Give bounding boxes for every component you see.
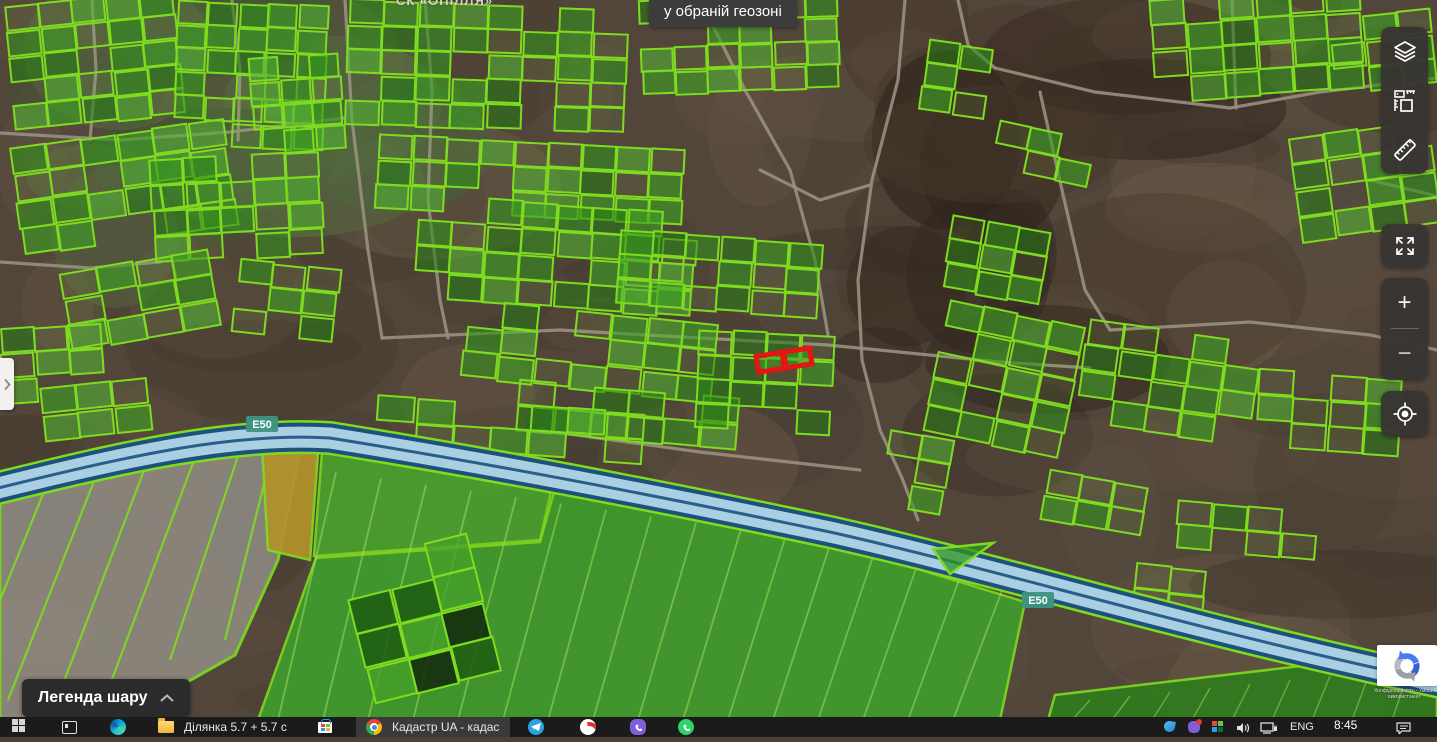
legend-scale-button[interactable] [1381, 78, 1428, 124]
expand-side-panel-tab[interactable] [0, 358, 14, 410]
edge-icon [110, 719, 126, 735]
tray-blue-icon [1163, 720, 1176, 733]
locate-icon [1392, 401, 1418, 427]
volume-icon [1236, 722, 1250, 734]
taskbar-folder-window[interactable] [158, 719, 174, 733]
taskbar-whatsapp[interactable] [678, 719, 694, 735]
taskbar-clock[interactable]: 8:45 [1334, 718, 1357, 732]
zoom-out-button[interactable]: − [1381, 329, 1428, 379]
whatsapp-icon [678, 719, 694, 735]
store-icon [318, 722, 332, 733]
chrome-icon [366, 719, 382, 735]
red-circle-app-icon [580, 719, 596, 735]
geozone-tooltip: у обраній геозоні [649, 0, 797, 27]
taskbar-viber[interactable] [630, 719, 646, 735]
taskbar-telegram[interactable] [528, 719, 544, 735]
layers-button[interactable] [1381, 29, 1428, 75]
locate-me-button[interactable] [1381, 391, 1428, 437]
fullscreen-icon [1393, 234, 1417, 258]
task-view-button[interactable] [62, 721, 77, 734]
tray-colored-app[interactable] [1212, 719, 1223, 732]
map-legend-icon [1392, 88, 1418, 114]
taskbar-edge[interactable] [110, 719, 126, 735]
recaptcha-badge[interactable] [1377, 645, 1437, 686]
layers-icon [1392, 39, 1418, 65]
measure-button[interactable] [1381, 127, 1428, 173]
satellite-cadastre-map[interactable]: E50E50 [0, 0, 1437, 737]
recaptcha-privacy-terms[interactable]: Конфіденційність - Умови використання [1371, 688, 1437, 700]
recaptcha-icon [1390, 649, 1424, 683]
colored-grid-icon [1212, 721, 1223, 732]
zoom-in-button[interactable]: + [1381, 278, 1428, 328]
measure-ruler-icon [1391, 136, 1419, 164]
fullscreen-button[interactable] [1381, 224, 1428, 268]
layer-legend-button[interactable]: Легенда шару [22, 679, 190, 717]
chevron-right-icon [4, 379, 11, 390]
zoom-controls: + − [1381, 278, 1428, 380]
taskbar-store[interactable] [318, 719, 332, 733]
task-view-icon [62, 721, 77, 734]
svg-text:E50: E50 [1028, 595, 1048, 607]
taskbar-red-app[interactable] [580, 719, 596, 735]
taskbar-active-window[interactable]: Кадастр UA - кадас [356, 717, 510, 737]
windows-taskbar: Ділянка 5.7 + 5.7 с Кадастр UA - кадас [0, 717, 1437, 737]
viber-icon [630, 719, 646, 735]
map-tools-panel [1381, 27, 1428, 174]
notification-center-button[interactable] [1396, 721, 1411, 737]
network-icon [1260, 722, 1278, 734]
chevron-up-icon [160, 694, 174, 702]
tray-viber[interactable] [1188, 719, 1200, 733]
telegram-icon [528, 719, 544, 735]
tray-network[interactable] [1260, 721, 1278, 737]
svg-text:E50: E50 [252, 419, 272, 431]
folder-icon [158, 721, 174, 733]
language-indicator[interactable]: ENG [1290, 721, 1314, 733]
windows-logo-icon [12, 719, 26, 733]
notification-center-icon [1396, 722, 1411, 734]
layer-legend-label: Легенда шару [38, 689, 148, 707]
tray-volume[interactable] [1236, 721, 1250, 737]
folder-window-title[interactable]: Ділянка 5.7 + 5.7 с [184, 720, 287, 734]
viber-tray-icon [1188, 721, 1200, 733]
start-button[interactable] [12, 719, 26, 733]
tray-app-blue[interactable] [1164, 719, 1175, 732]
active-window-title: Кадастр UA - кадас [392, 720, 499, 734]
